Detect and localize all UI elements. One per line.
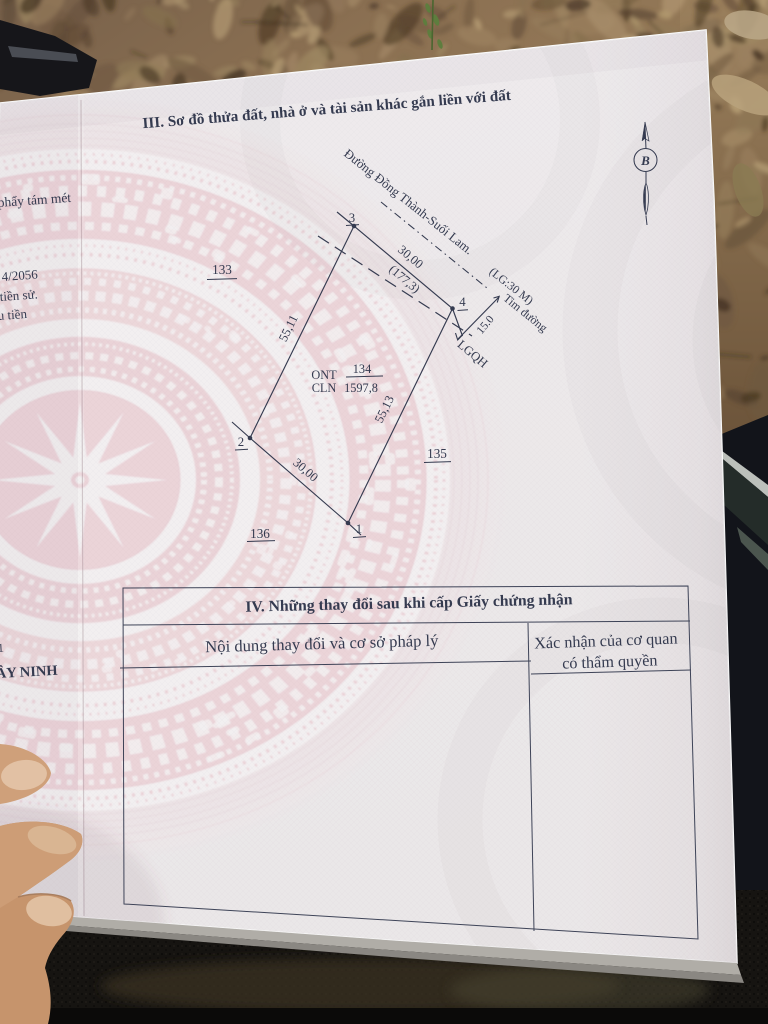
svg-text:4: 4 — [459, 295, 466, 309]
svg-text:4/2056: 4/2056 — [1, 266, 39, 284]
svg-text:1: 1 — [0, 641, 4, 655]
svg-text:CLN: CLN — [312, 381, 337, 395]
svg-text:u tiền: u tiền — [0, 306, 28, 323]
svg-text:133: 133 — [212, 262, 232, 277]
svg-text:B: B — [640, 153, 650, 168]
svg-text:tiền sử.: tiền sử. — [0, 286, 38, 304]
svg-text:3: 3 — [349, 211, 355, 225]
svg-text:135: 135 — [427, 446, 447, 461]
svg-text:134: 134 — [353, 362, 371, 376]
svg-text:2: 2 — [238, 435, 244, 449]
svg-text:1: 1 — [356, 522, 362, 536]
svg-text:ÂY NINH: ÂY NINH — [0, 662, 59, 682]
svg-text:ONT: ONT — [311, 368, 337, 382]
svg-text:có thẩm quyền: có thẩm quyền — [562, 651, 658, 672]
svg-text:136: 136 — [250, 526, 270, 541]
svg-text:1597,8: 1597,8 — [344, 381, 378, 395]
